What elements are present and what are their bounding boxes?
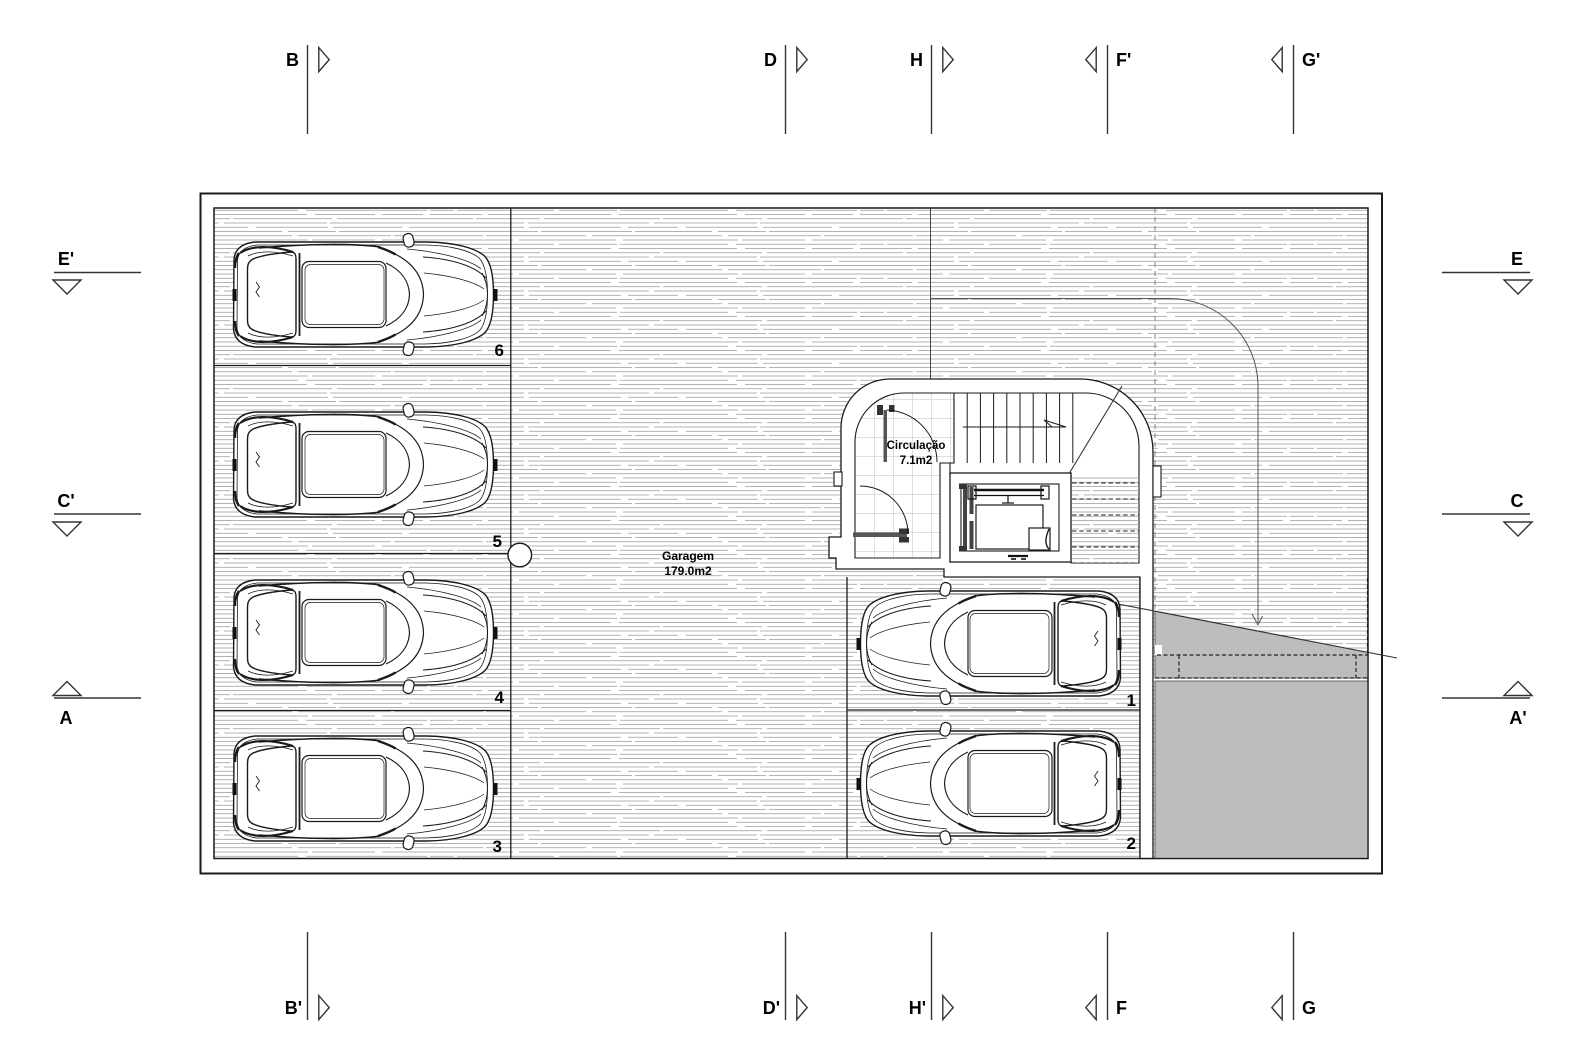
svg-text:D: D: [764, 50, 777, 70]
svg-text:2: 2: [1127, 834, 1136, 853]
svg-text:F: F: [1116, 998, 1127, 1018]
svg-text:6: 6: [495, 341, 504, 360]
svg-text:D': D': [763, 998, 780, 1018]
svg-text:F': F': [1116, 50, 1131, 70]
svg-text:C': C': [57, 491, 74, 511]
svg-text:B': B': [285, 998, 302, 1018]
svg-text:Circulação: Circulação: [887, 440, 946, 452]
svg-text:G: G: [1302, 998, 1316, 1018]
svg-text:H': H': [909, 998, 926, 1018]
svg-text:Garagem: Garagem: [662, 549, 714, 563]
svg-text:5: 5: [493, 532, 502, 551]
svg-text:7.1m2: 7.1m2: [900, 455, 933, 467]
svg-text:3: 3: [493, 837, 502, 856]
svg-text:B: B: [286, 50, 299, 70]
svg-text:1: 1: [1127, 691, 1136, 710]
svg-text:H: H: [910, 50, 923, 70]
svg-text:E': E': [58, 249, 74, 269]
svg-text:A': A': [1509, 708, 1526, 728]
svg-text:4: 4: [495, 688, 505, 707]
svg-text:A: A: [60, 708, 73, 728]
svg-text:C: C: [1511, 491, 1524, 511]
svg-text:G': G': [1302, 50, 1320, 70]
svg-text:179.0m2: 179.0m2: [664, 564, 712, 578]
svg-text:E: E: [1511, 249, 1523, 269]
